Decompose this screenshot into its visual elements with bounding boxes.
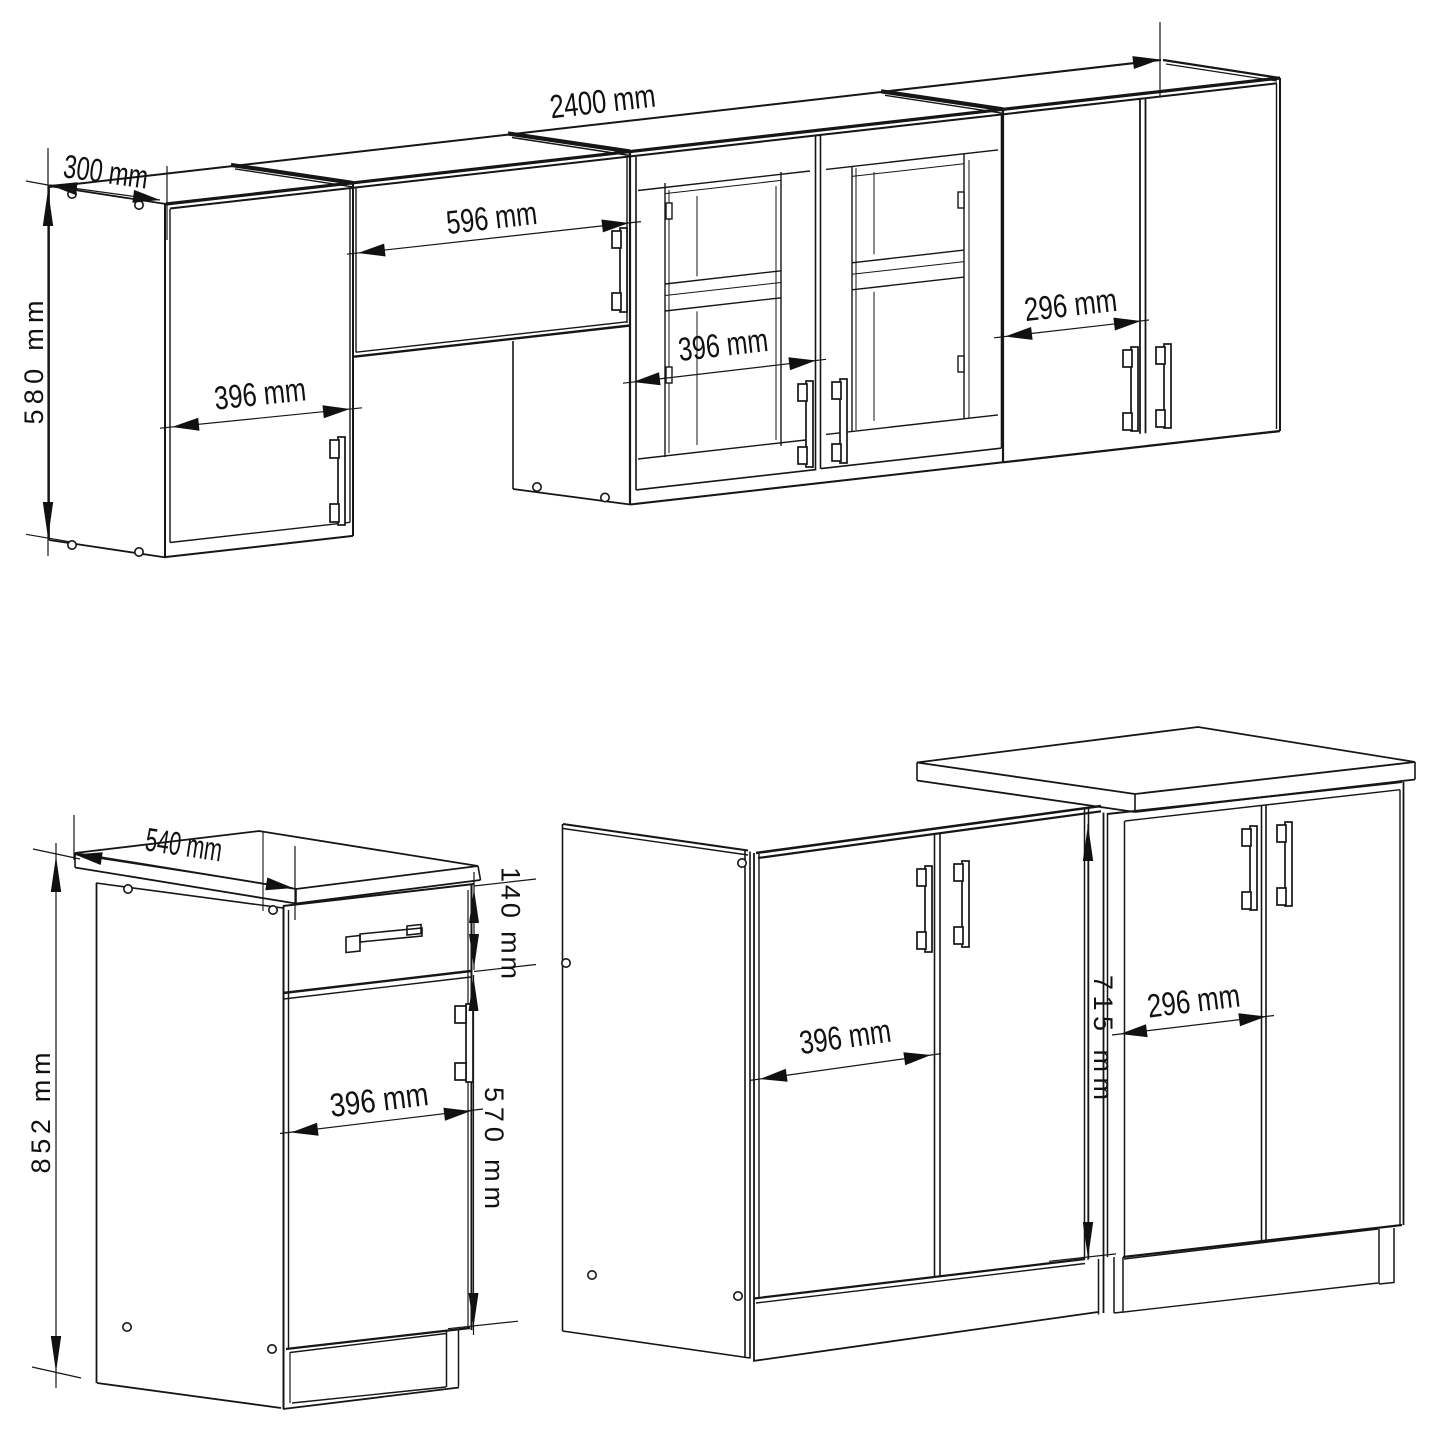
svg-text:396 mm: 396 mm <box>328 1075 431 1124</box>
svg-text:396 mm: 396 mm <box>212 370 307 416</box>
svg-text:852 mm: 852 mm <box>26 1053 56 1174</box>
svg-text:396 mm: 396 mm <box>676 321 770 368</box>
svg-text:296 mm: 296 mm <box>1145 976 1242 1024</box>
svg-text:296 mm: 296 mm <box>1022 281 1119 328</box>
svg-text:2400 mm: 2400 mm <box>548 77 658 126</box>
svg-text:540 mm: 540 mm <box>143 821 225 869</box>
svg-text:570 mm: 570 mm <box>479 1087 509 1209</box>
svg-text:396 mm: 396 mm <box>797 1012 893 1061</box>
svg-text:140 mm: 140 mm <box>496 867 526 979</box>
svg-text:580 mm: 580 mm <box>19 301 49 425</box>
